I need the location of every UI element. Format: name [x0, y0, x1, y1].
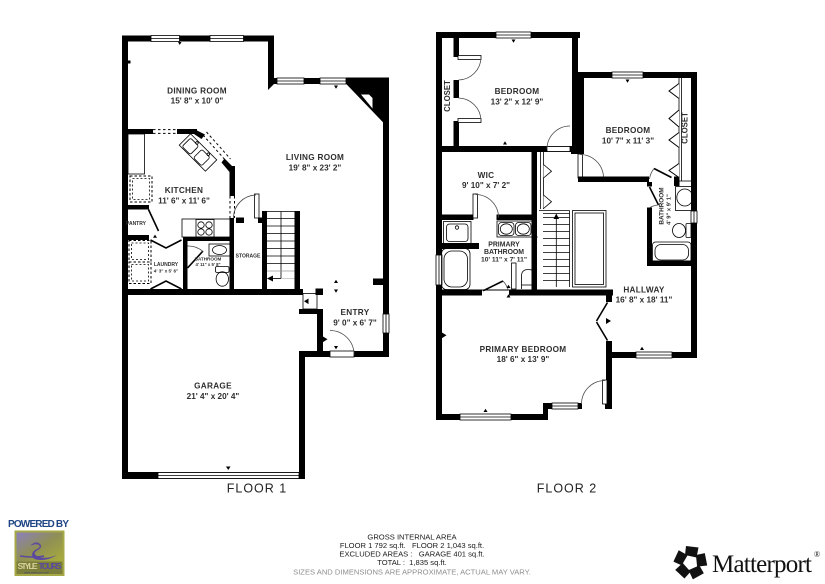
svg-text:21' 4" x 20' 4": 21' 4" x 20' 4" [187, 392, 240, 401]
svg-text:POWERED BY: POWERED BY [8, 519, 69, 530]
svg-text:PRIMARY: PRIMARY [488, 242, 520, 249]
svg-text:16' 8" x 18' 11": 16' 8" x 18' 11" [616, 296, 673, 305]
svg-text:WIC: WIC [478, 171, 495, 180]
svg-text:Matterport: Matterport [712, 551, 812, 578]
svg-text:LAUNDRY: LAUNDRY [154, 262, 179, 268]
svg-text:ENTRY: ENTRY [341, 308, 370, 317]
svg-text:®: ® [814, 550, 820, 559]
svg-text:CLOSET: CLOSET [681, 112, 690, 144]
svg-text:BEDROOM: BEDROOM [495, 87, 540, 96]
svg-text:4' 3" x 5' 6": 4' 3" x 5' 6" [154, 269, 178, 274]
svg-text:www.styletours.com: www.styletours.com [24, 571, 49, 575]
svg-text:FLOOR 1: FLOOR 1 [227, 482, 288, 496]
svg-text:10' 11" x 7' 11": 10' 11" x 7' 11" [481, 257, 527, 264]
svg-text:BATHROOM: BATHROOM [195, 257, 222, 262]
svg-text:HALLWAY: HALLWAY [623, 286, 665, 295]
svg-text:11' 6" x 11' 6": 11' 6" x 11' 6" [158, 197, 210, 206]
svg-text:19' 8" x 23' 2": 19' 8" x 23' 2" [289, 164, 342, 173]
svg-text:9' 0" x 6' 7": 9' 0" x 6' 7" [333, 319, 377, 328]
svg-text:PRIMARY BEDROOM: PRIMARY BEDROOM [480, 345, 567, 354]
svg-text:DINING ROOM: DINING ROOM [167, 87, 227, 96]
svg-text:SIZES AND DIMENSIONS ARE APPRO: SIZES AND DIMENSIONS ARE APPROXIMATE, AC… [293, 568, 531, 577]
svg-text:15' 8" x 10' 0": 15' 8" x 10' 0" [171, 97, 224, 106]
svg-text:PANTRY: PANTRY [126, 221, 147, 227]
svg-text:BEDROOM: BEDROOM [606, 126, 651, 135]
svg-text:CLOSET: CLOSET [443, 80, 452, 112]
svg-text:18' 6" x 13' 9": 18' 6" x 13' 9" [497, 355, 550, 364]
svg-text:STORAGE: STORAGE [236, 254, 261, 260]
svg-text:FLOOR 2: FLOOR 2 [537, 482, 598, 496]
svg-text:BATHROOM: BATHROOM [659, 187, 666, 224]
svg-text:10' 7" x 11' 3": 10' 7" x 11' 3" [602, 137, 654, 146]
svg-text:4' 9" x 9' 1": 4' 9" x 9' 1" [667, 194, 673, 225]
svg-text:GARAGE: GARAGE [194, 382, 232, 391]
svg-text:BATHROOM: BATHROOM [484, 249, 524, 256]
svg-text:4' 11" x 5' 8": 4' 11" x 5' 8" [196, 262, 221, 267]
svg-text:LIVING ROOM: LIVING ROOM [286, 153, 344, 162]
svg-text:9' 10" x 7' 2": 9' 10" x 7' 2" [462, 181, 510, 190]
svg-text:13' 2" x 12' 9": 13' 2" x 12' 9" [491, 98, 544, 107]
svg-text:KITCHEN: KITCHEN [165, 186, 204, 195]
svg-text:TOURS: TOURS [39, 561, 62, 571]
svg-text:STYLE: STYLE [18, 561, 38, 571]
svg-text:TOTAL : 1,835 sq.ft.: TOTAL : 1,835 sq.ft. [377, 558, 447, 567]
